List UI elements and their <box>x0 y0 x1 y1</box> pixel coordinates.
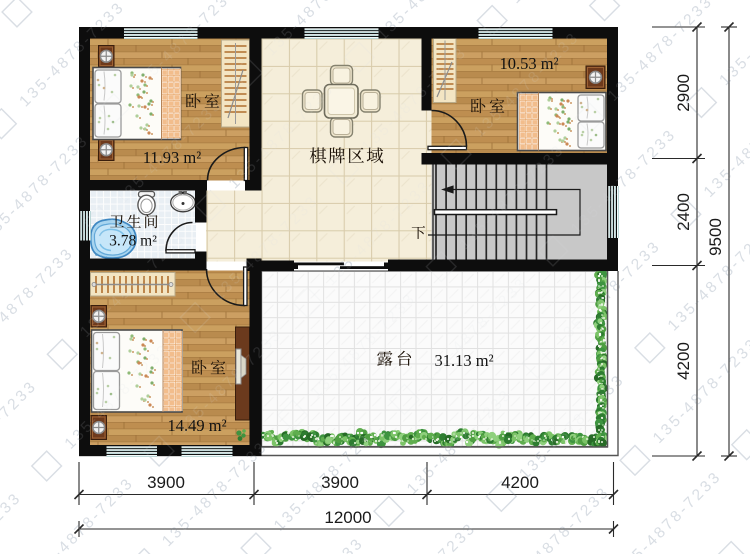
svg-text:12000: 12000 <box>324 508 371 527</box>
svg-text:3.78 m²: 3.78 m² <box>109 233 157 250</box>
svg-text:9500: 9500 <box>706 218 725 256</box>
svg-text:3900: 3900 <box>147 473 185 492</box>
svg-text:4200: 4200 <box>674 342 693 380</box>
